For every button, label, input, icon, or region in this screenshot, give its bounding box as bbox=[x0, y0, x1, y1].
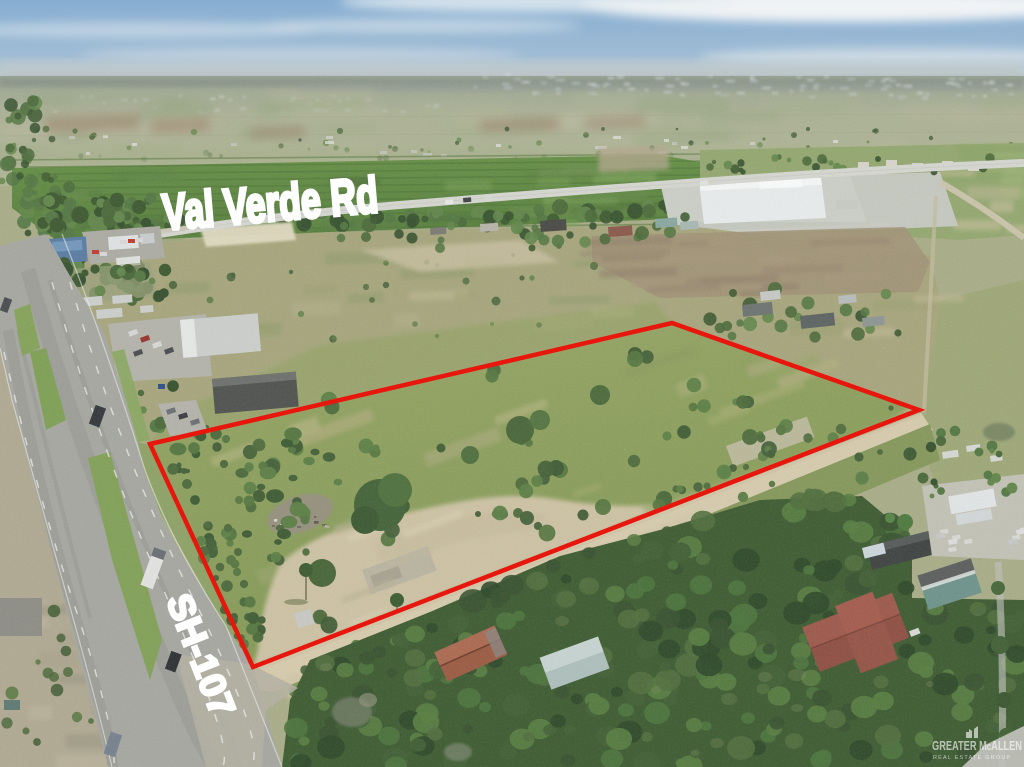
svg-text:GREATER McALLEN: GREATER McALLEN bbox=[932, 738, 1022, 753]
svg-text:REAL ESTATE GROUP: REAL ESTATE GROUP bbox=[933, 755, 1011, 761]
